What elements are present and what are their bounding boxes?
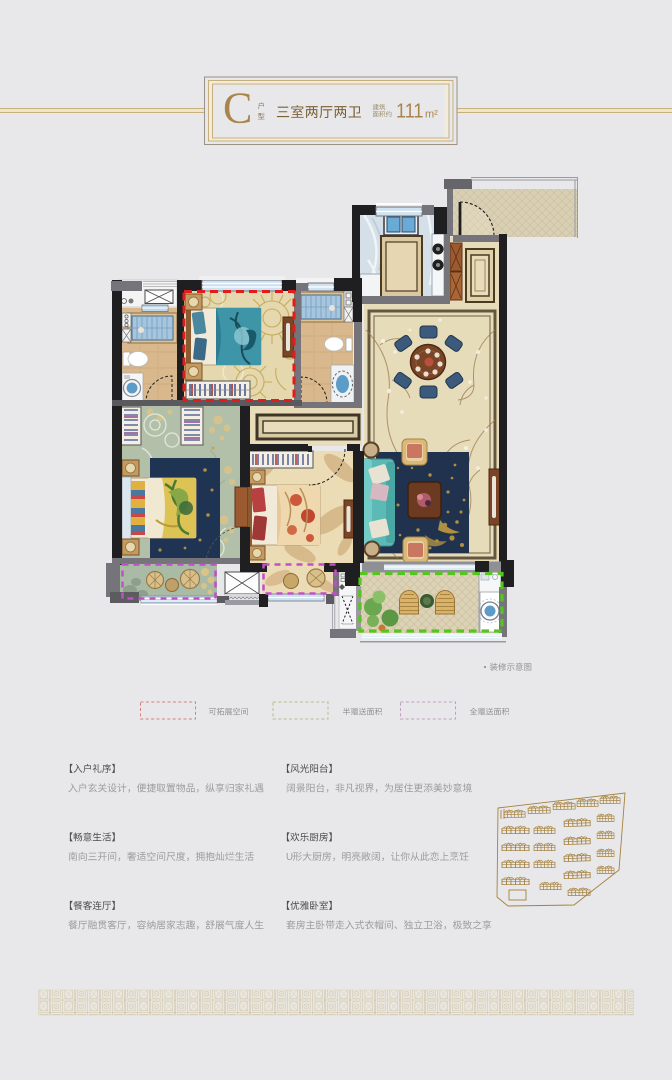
svg-text:111: 111: [396, 101, 424, 123]
svg-text:U: U: [286, 852, 293, 863]
svg-text:m²: m²: [425, 109, 438, 121]
svg-text:C: C: [223, 84, 252, 133]
